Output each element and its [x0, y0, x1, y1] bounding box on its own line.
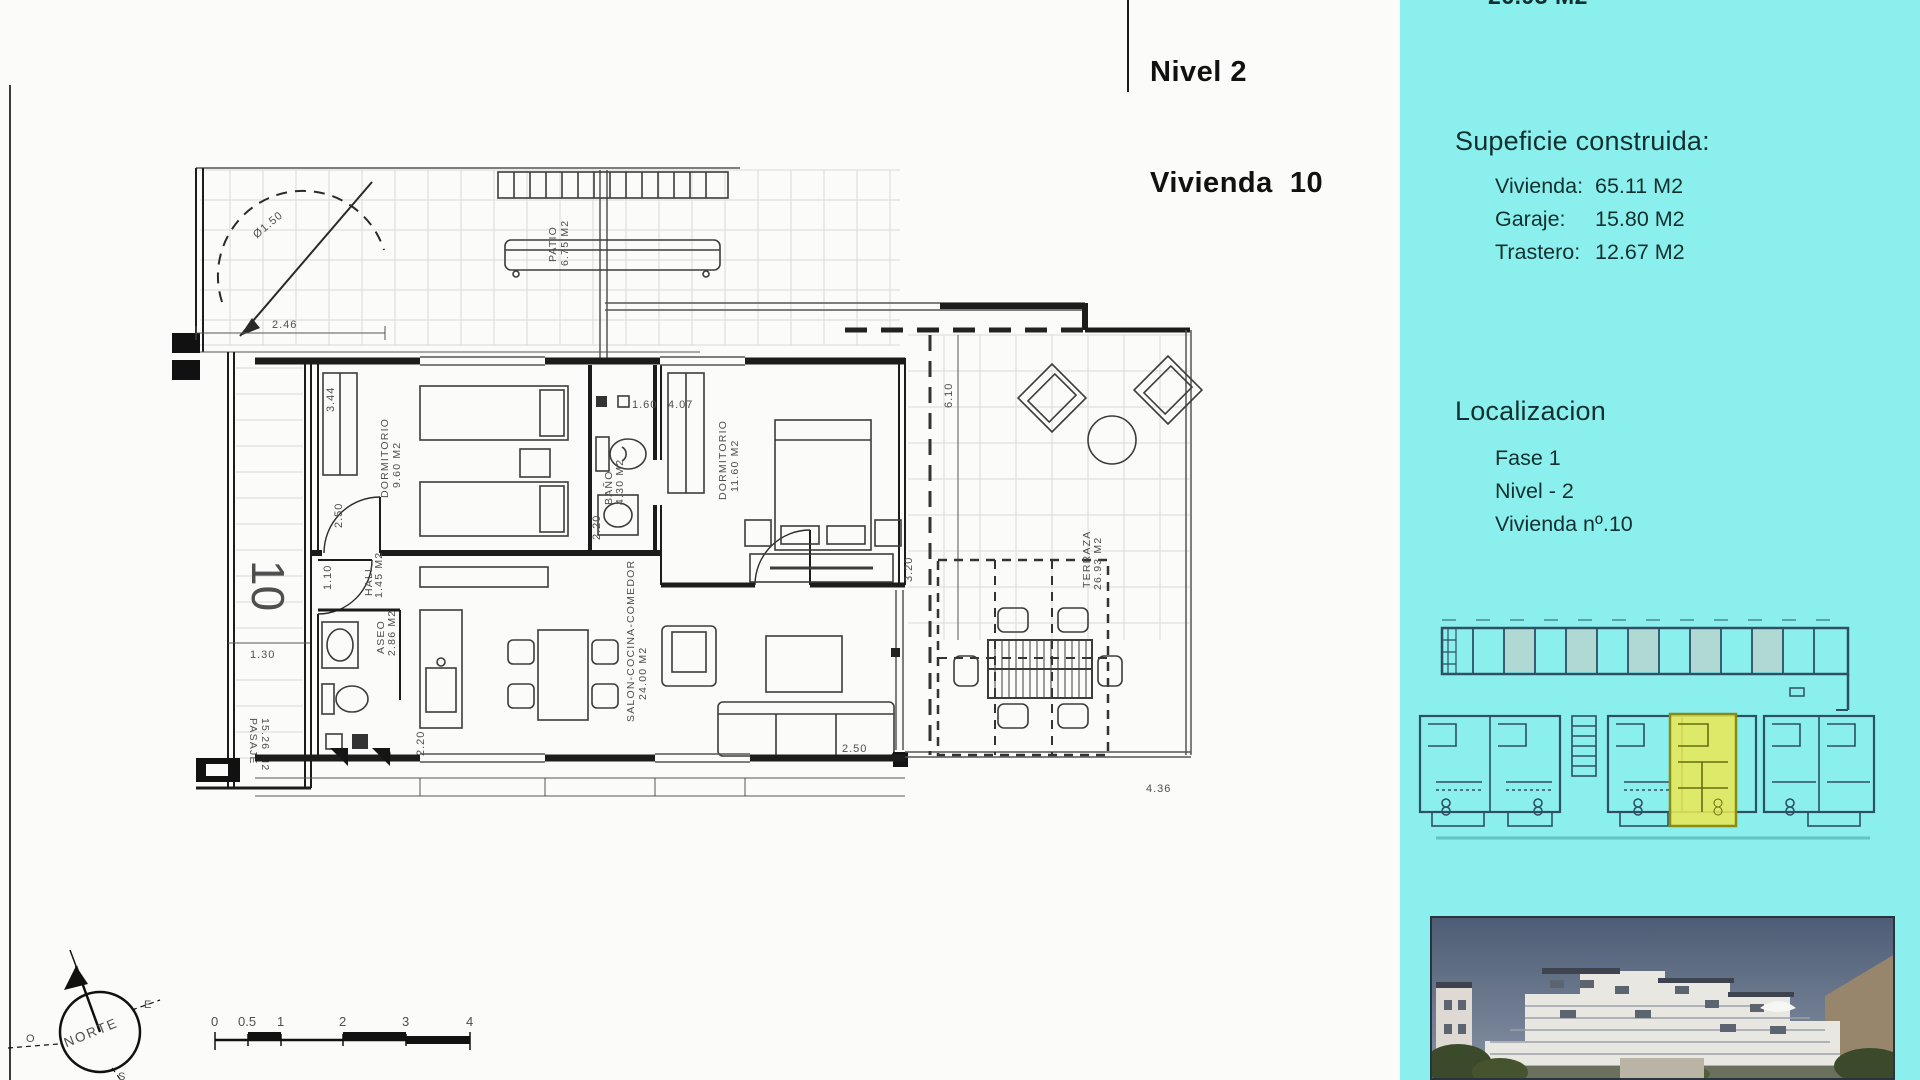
highlighted-unit-10: [1670, 714, 1736, 826]
room-label-salon: SALON-COCINA-COMEDOR: [625, 560, 637, 722]
dimension-110: 1.10: [322, 565, 334, 590]
bedroom2-wardrobe: [668, 373, 704, 493]
apartment-row: [1420, 716, 1874, 826]
location-row-vivienda: Vivienda nº.10: [1495, 508, 1633, 541]
location-rows: Fase 1 Nivel - 2 Vivienda nº.10: [1495, 442, 1633, 541]
svg-text:6.10: 6.10: [943, 383, 955, 408]
surface-row-garaje: Garaje: 15.80 M2: [1495, 203, 1685, 236]
terrace-dining-set: [954, 608, 1122, 728]
pasaje-corridor: 10 PASAJE 15.26 M2 1.30: [228, 352, 311, 788]
room-area-dormitorio2: 11.60 M2: [729, 439, 741, 492]
roof-edge-lines: [605, 303, 1085, 330]
level-title: Nivel 2: [1150, 54, 1323, 91]
compass-north-label: NORTE: [62, 1015, 120, 1050]
dimension-250a: 2.50: [333, 503, 345, 528]
armchair: [662, 626, 716, 686]
wall-section-block: [172, 360, 200, 380]
terrace-lounge-set: [1018, 356, 1202, 464]
dining-table-chairs: [508, 630, 618, 720]
room-area-terraza: 26.93 M2: [1092, 537, 1104, 590]
title-divider-line: [1127, 0, 1129, 92]
lower-strip: [196, 748, 905, 796]
room-area-pasaje: 15.26 M2: [259, 718, 271, 771]
info-sidebar: 26.93 M2 Supeficie construida: Vivienda:…: [1400, 0, 1920, 1080]
location-row-fase: Fase 1: [1495, 442, 1633, 475]
scale-tick-05: 0.5: [238, 1014, 256, 1029]
bath-fixture: [618, 396, 629, 407]
surface-title: Supeficie construida:: [1455, 126, 1710, 157]
scale-tick-4: 4: [466, 1014, 473, 1029]
room-area-patio: 6.75 M2: [559, 220, 571, 266]
location-title: Localizacion: [1455, 396, 1606, 427]
room-area-bano: 4.30 M2: [614, 459, 626, 505]
stair-diameter-label: Ø1.50: [251, 209, 286, 241]
svg-text:1.30: 1.30: [250, 649, 275, 661]
sofa: [718, 702, 894, 756]
room-label-dormitorio2: DORMITORIO: [717, 420, 729, 500]
drying-rack: [498, 172, 728, 198]
dimension-130: 1.30: [228, 643, 311, 661]
dimension-250b: 2.50: [842, 743, 867, 755]
unit-number-label: 10: [242, 560, 294, 611]
double-bed: [745, 420, 901, 550]
aseo-toilet: [322, 684, 368, 714]
scale-tick-3: 3: [402, 1014, 409, 1029]
bath-fixture: [596, 396, 607, 407]
room-area-aseo: 2.86 M2: [386, 610, 398, 656]
room-area-salon: 24.00 M2: [637, 647, 649, 700]
sun-lounger: [505, 240, 720, 277]
dimension-246: 2.46: [196, 319, 385, 340]
tv-cabinet: [750, 554, 893, 582]
plan-sheet-page: Ø1.50 PATIO 6.75 M2 2.46 10 PASAJE 15.26: [0, 0, 1920, 1080]
dimension-220b: 2.20: [415, 731, 427, 756]
clipped-area-value: 26.93 M2: [1488, 0, 1588, 10]
room-label-dormitorio1: DORMITORIO: [379, 418, 391, 498]
dimension-320: 3.20: [903, 557, 915, 582]
surface-row-vivienda: Vivienda: 65.11 M2: [1495, 170, 1685, 203]
scale-bar: 0 0.5 1 2 3 4: [211, 1014, 473, 1050]
room-area-dormitorio1: 9.60 M2: [391, 442, 403, 488]
unit-title: Vivienda 10: [1150, 165, 1323, 202]
title-block: Nivel 2 Vivienda 10: [1150, 0, 1323, 276]
location-row-nivel: Nivel - 2: [1495, 475, 1633, 508]
scale-tick-1: 1: [277, 1014, 284, 1029]
dimension-220a: 2.20: [591, 515, 603, 540]
scale-tick-2: 2: [339, 1014, 346, 1029]
spiral-stair: Ø1.50: [218, 182, 384, 336]
dimension-436: 4.36: [1146, 783, 1171, 795]
surface-row-trastero: Trastero: 12.67 M2: [1495, 236, 1685, 269]
compass-west-label: O: [26, 1033, 35, 1045]
building-photo: [1430, 916, 1895, 1080]
compass-rose: NORTE E O S: [8, 950, 160, 1080]
dimension-344: 3.44: [325, 387, 337, 412]
dimension-610: 6.10: [943, 335, 958, 640]
room-label-patio: PATIO: [547, 226, 559, 262]
aseo-sink: [322, 622, 358, 668]
compass-east-label: E: [144, 999, 151, 1011]
dimension-160: 1.60: [632, 399, 657, 411]
coffee-table: [766, 636, 842, 692]
scale-tick-0: 0: [211, 1014, 218, 1029]
site-location-miniplan: [1412, 612, 1908, 844]
surface-rows: Vivienda: 65.11 M2 Garaje: 15.80 M2 Tras…: [1495, 170, 1685, 269]
room-area-hall: 1.45 M2: [373, 552, 385, 598]
aseo-cabinet: [326, 734, 342, 749]
compass-south-label: S: [118, 1071, 125, 1080]
svg-text:2.46: 2.46: [272, 319, 297, 331]
parking-strip: [1442, 628, 1848, 710]
aseo-cabinet: [352, 734, 368, 749]
twin-beds: [420, 386, 568, 536]
